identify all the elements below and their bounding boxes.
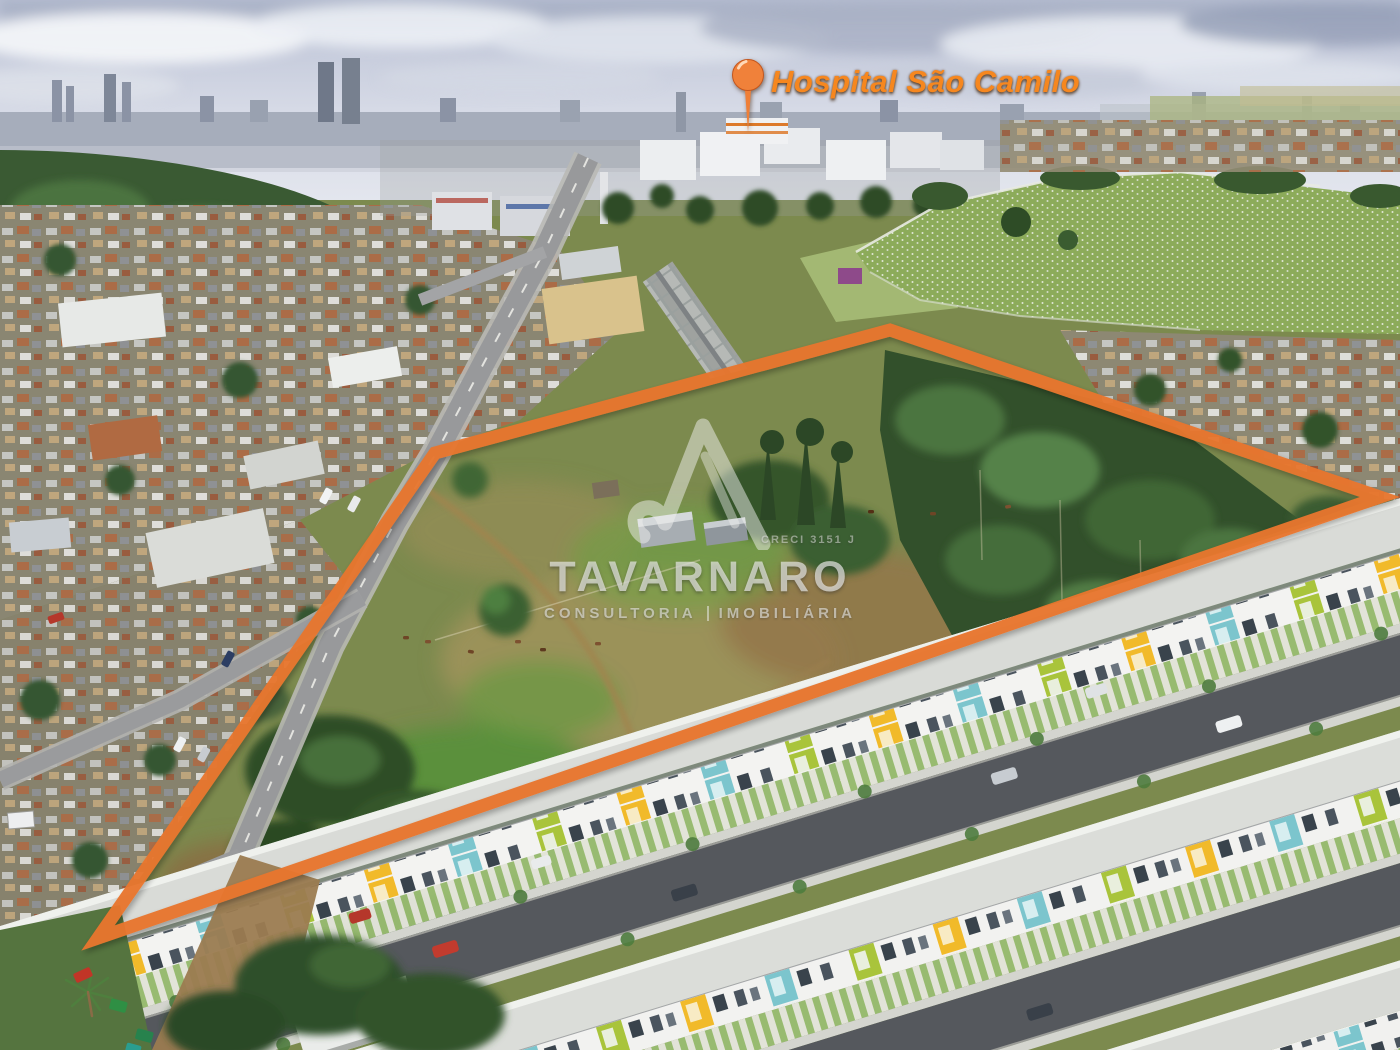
aerial-scene-art	[0, 0, 1400, 1050]
map-pin-icon	[731, 52, 765, 136]
hospital-label: Hospital São Camilo	[771, 64, 1080, 100]
hospital-callout: Hospital São Camilo	[731, 52, 1080, 136]
roadside-sign	[7, 811, 34, 829]
aerial-photo: Hospital São Camilo CRECI 3151 J TAVARNA…	[0, 0, 1400, 1050]
